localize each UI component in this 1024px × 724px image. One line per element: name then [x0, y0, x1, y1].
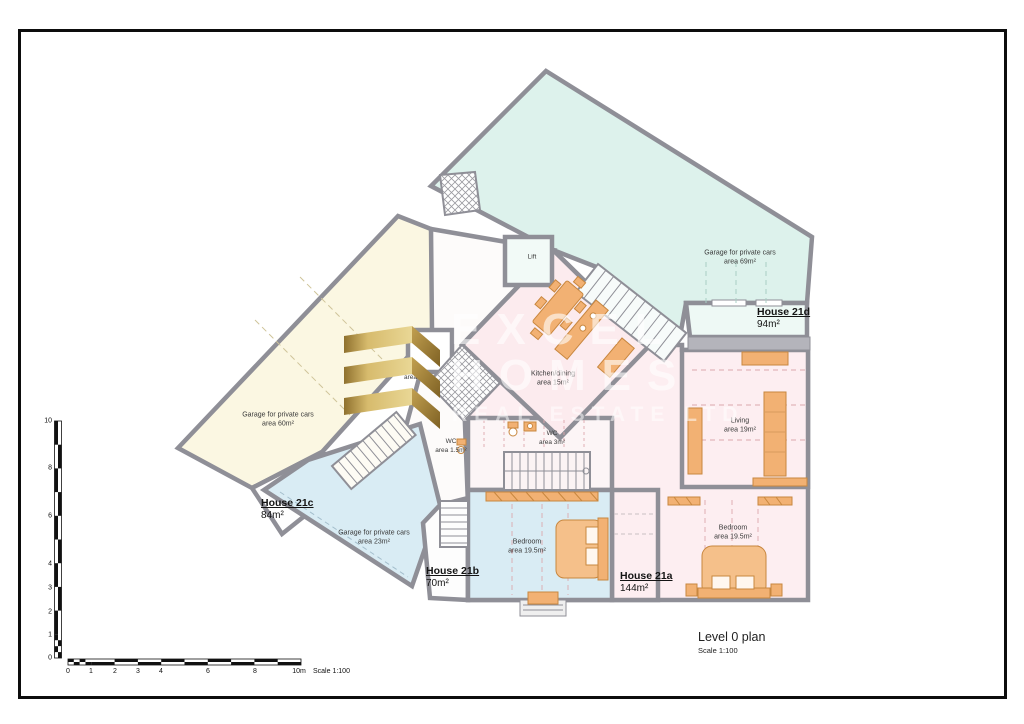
house-21a-title: House 21a 144m² — [620, 570, 673, 595]
v-tick-6: 6 — [48, 513, 52, 520]
wc-small-label: WC area 1.5m² — [435, 438, 466, 456]
house-21b-title: House 21b 70m² — [426, 565, 479, 590]
house-21a-area: 144m² — [620, 583, 673, 595]
scale-bar-vertical — [55, 421, 62, 658]
living-cabinet-right — [764, 392, 786, 476]
terrace-wall-band — [688, 337, 810, 350]
plan-scale: Scale 1:100 — [698, 646, 765, 655]
v-tick-10: 10 — [44, 418, 52, 425]
house-21c-name: House 21c — [261, 497, 314, 510]
h-tick-1: 1 — [89, 668, 93, 675]
plan-title: Level 0 plan — [698, 630, 765, 644]
house-21b-area: 70m² — [426, 578, 479, 590]
bedroom-left-label: Bedroom area 19.5m² — [508, 538, 546, 557]
house-21b-name: House 21b — [426, 565, 479, 578]
excel-homes-logo — [340, 320, 450, 432]
house-21a-name: House 21a — [620, 570, 673, 583]
stair-central — [504, 452, 590, 490]
floor-plan-drawing — [0, 0, 1024, 724]
bed-left — [556, 518, 608, 580]
h-tick-0: 0 — [66, 668, 70, 675]
living-cabinet-top — [742, 352, 788, 365]
h-tick-3: 3 — [136, 668, 140, 675]
logo-bars — [344, 326, 440, 429]
h-tick-4: 4 — [159, 668, 163, 675]
kitchen-label: Kitchen/dining area 15m² — [531, 370, 575, 389]
v-tick-2: 2 — [48, 609, 52, 616]
title-block: Level 0 plan Scale 1:100 — [698, 630, 765, 655]
scale-bar-horizontal — [68, 659, 301, 665]
wc-large-label: WC area 3m² — [539, 430, 565, 448]
house-21d-area: 94m² — [757, 319, 810, 331]
garage-21d-label: Garage for private cars area 69m² — [704, 249, 776, 268]
living-label: Living area 19m² — [724, 417, 756, 436]
v-tick-1: 1 — [48, 632, 52, 639]
h-tick-6: 6 — [206, 668, 210, 675]
house-21d-name: House 21d — [757, 306, 810, 319]
v-tick-3: 3 — [48, 585, 52, 592]
h-tick-8: 8 — [253, 668, 257, 675]
lift-upper-label: Lift — [528, 254, 537, 263]
floor-plan-sheet: Garage for private cars area 69m² Garage… — [0, 0, 1024, 724]
stair-small — [440, 501, 468, 547]
garage-21c-label: Garage for private cars area 60m² — [242, 411, 314, 430]
ramp-crosshatch — [440, 172, 480, 215]
v-tick-8: 8 — [48, 465, 52, 472]
v-tick-0: 0 — [48, 655, 52, 662]
house-21c-title: House 21c 84m² — [261, 497, 314, 522]
garage-21b-label: Garage for private cars area 23m² — [338, 529, 410, 548]
house-21d-title: House 21d 94m² — [757, 306, 810, 331]
living-cabinet-left — [688, 408, 702, 474]
h-tick-2: 2 — [113, 668, 117, 675]
scale-note: Scale 1:100 — [313, 668, 350, 675]
bedroom-right-label: Bedroom area 19.5m² — [714, 524, 752, 543]
house-21c-area: 84m² — [261, 510, 314, 522]
h-tick-10m: 10m — [292, 668, 306, 675]
v-tick-4: 4 — [48, 561, 52, 568]
living-shelf-bottom — [753, 478, 807, 486]
